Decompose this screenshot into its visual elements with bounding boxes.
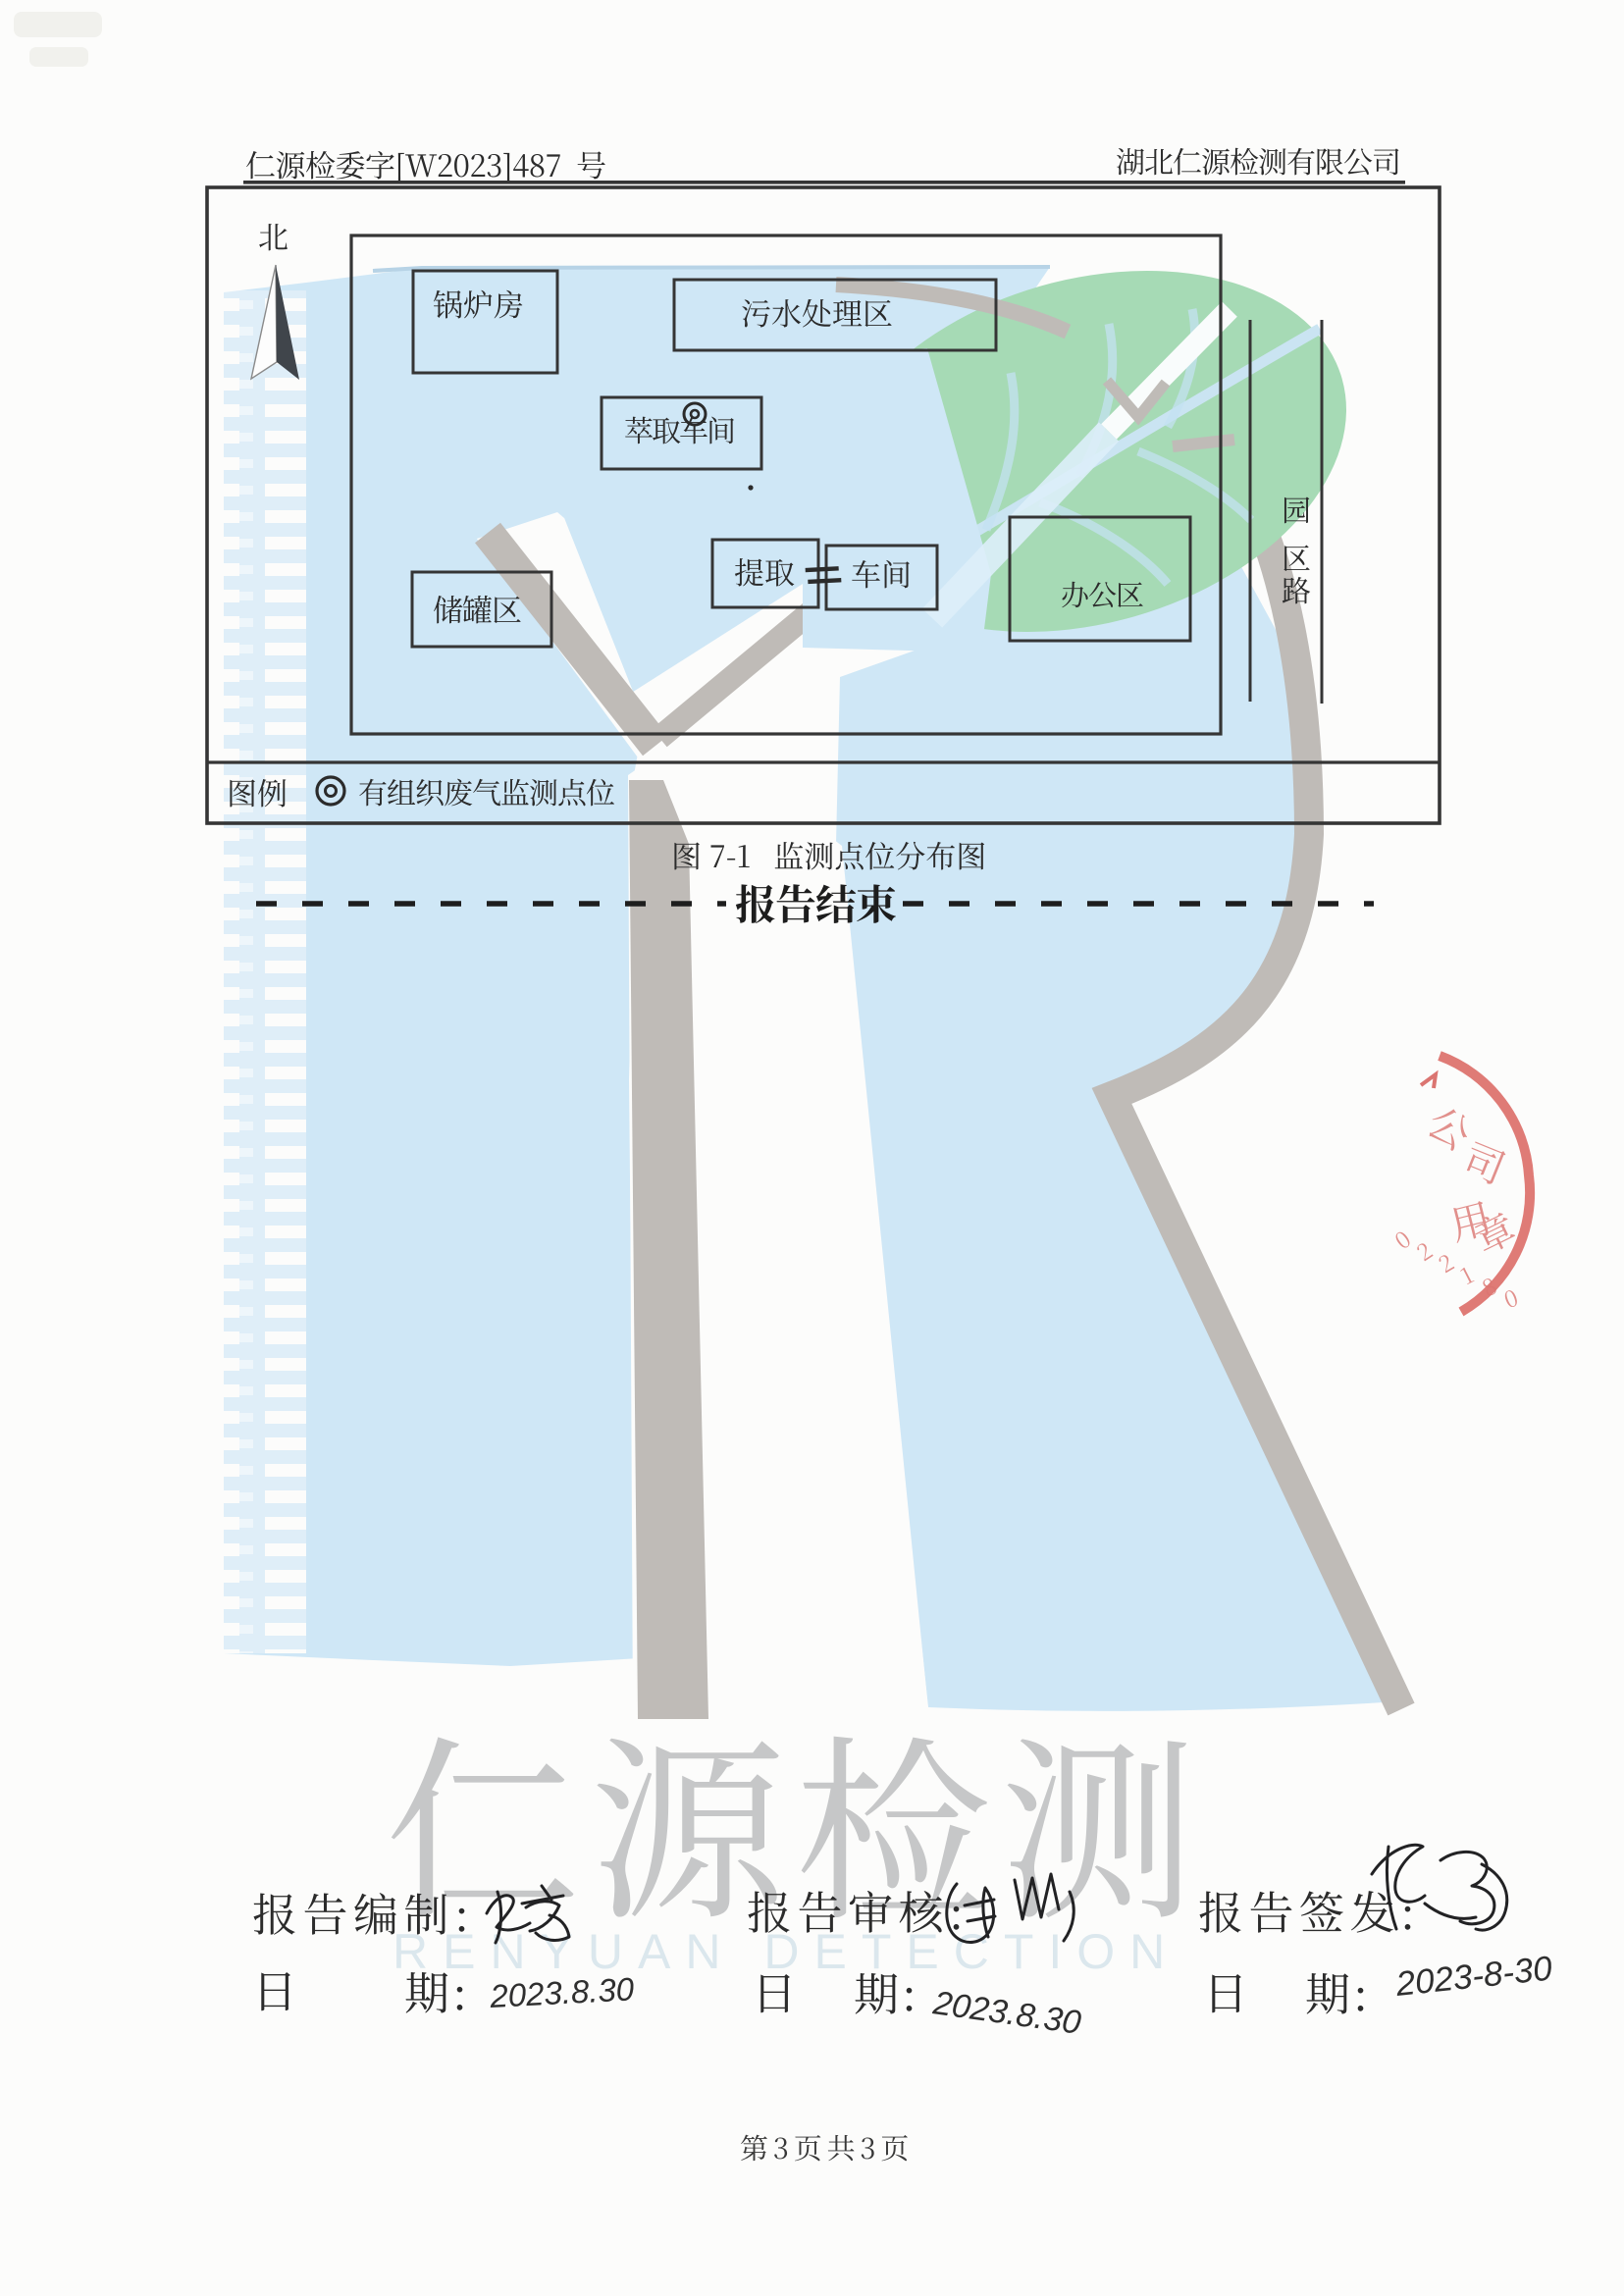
- svg-text:2023.8.30: 2023.8.30: [930, 1984, 1083, 2042]
- svg-text:RENYUAN DETECTION: RENYUAN DETECTION: [393, 1924, 1179, 1979]
- svg-text:2023.8.30: 2023.8.30: [488, 1970, 635, 2014]
- svg-text:2023-8-30: 2023-8-30: [1393, 1949, 1554, 2004]
